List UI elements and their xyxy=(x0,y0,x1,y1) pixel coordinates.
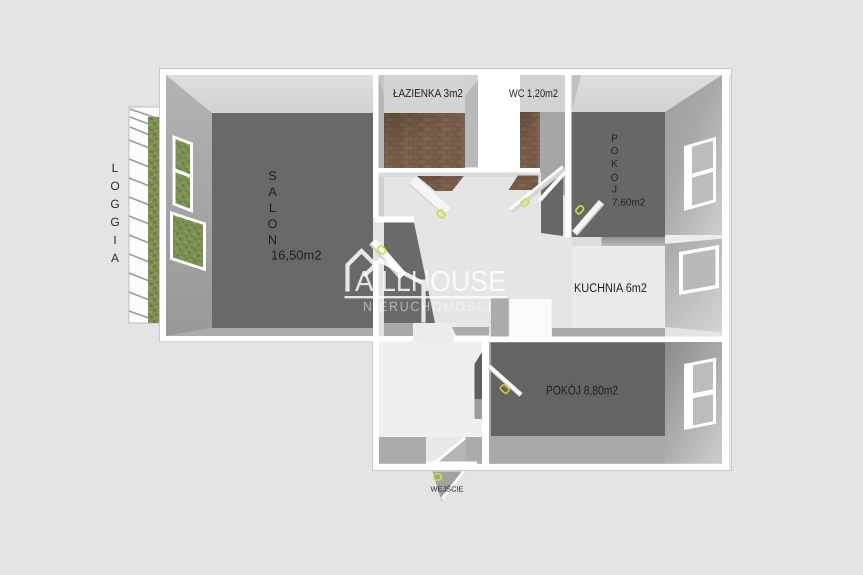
svg-text:A: A xyxy=(268,185,277,199)
svg-text:L: L xyxy=(269,201,276,215)
svg-text:ŁAZIENKA 3m2: ŁAZIENKA 3m2 xyxy=(393,88,463,100)
svg-text:O: O xyxy=(611,146,619,157)
svg-text:N: N xyxy=(268,233,277,247)
svg-text:WEJŚCIE: WEJŚCIE xyxy=(431,485,464,494)
svg-text:S: S xyxy=(268,169,276,183)
svg-text:LLHOUSE: LLHOUSE xyxy=(381,266,506,298)
svg-text:P: P xyxy=(611,134,618,145)
svg-text:WC 1,20m2: WC 1,20m2 xyxy=(509,88,558,100)
svg-text:G: G xyxy=(110,197,119,211)
svg-text:A: A xyxy=(355,266,374,298)
svg-text:7,60m2: 7,60m2 xyxy=(612,198,646,209)
svg-text:NIERUCHOMOŚCI: NIERUCHOMOŚCI xyxy=(363,298,493,314)
svg-text:16,50m2: 16,50m2 xyxy=(271,248,322,263)
svg-text:K: K xyxy=(611,159,618,170)
svg-text:KUCHNIA 6m2: KUCHNIA 6m2 xyxy=(574,281,647,295)
svg-text:O: O xyxy=(268,217,278,231)
svg-text:G: G xyxy=(110,215,119,229)
svg-text:POKÓJ 8,80m2: POKÓJ 8,80m2 xyxy=(546,384,618,398)
svg-text:O: O xyxy=(110,179,119,193)
svg-text:A: A xyxy=(111,251,119,265)
svg-text:I: I xyxy=(113,233,116,247)
svg-text:J: J xyxy=(612,185,617,196)
svg-text:L: L xyxy=(112,161,119,175)
svg-text:Ó: Ó xyxy=(611,172,619,184)
